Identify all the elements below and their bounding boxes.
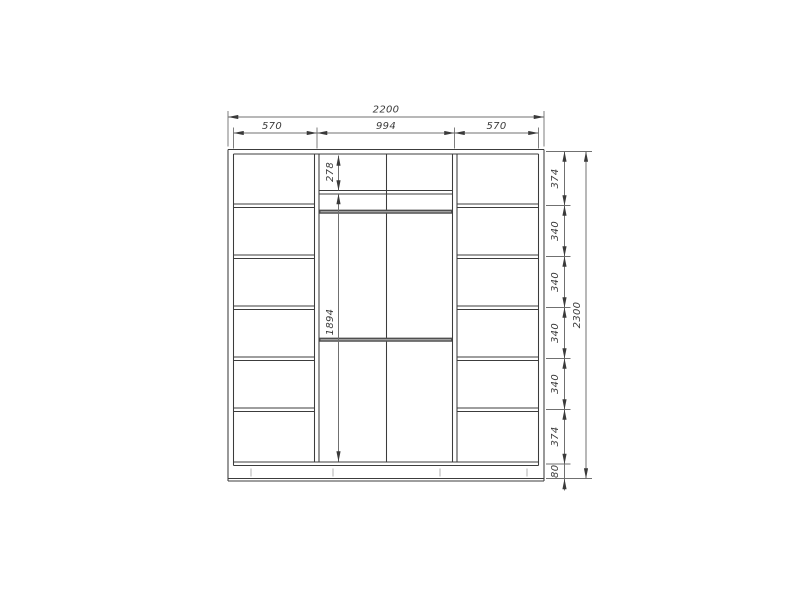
dim-chain-label-4: 340 (550, 323, 561, 343)
dim-chain-label-1: 374 (550, 169, 561, 189)
dim-overall-width-label: 2200 (373, 105, 400, 116)
dim-chain-label-7: 80 (550, 465, 561, 478)
dim-chain-label-2: 340 (550, 221, 561, 241)
plinth-joint-marks (251, 469, 527, 477)
dim-top-sections: 570 994 570 (234, 121, 539, 149)
dim-overall-height-label: 2300 (572, 302, 583, 329)
dim-chain-label-5: 340 (550, 374, 561, 394)
dim-upper-shelf-label: 278 (325, 162, 336, 182)
dim-left-section-label: 570 (262, 121, 282, 132)
dim-right-chain: 374 340 340 340 340 374 80 (546, 152, 592, 491)
left-partition (315, 154, 320, 462)
dim-center-section-label: 994 (376, 121, 396, 132)
wardrobe-dimension-drawing: 2200 570 994 570 278 1894 (0, 0, 800, 600)
dim-upper-shelf-height: 278 (325, 156, 338, 191)
technical-drawing-canvas: 2200 570 994 570 278 1894 (0, 0, 800, 600)
dim-hanging-height: 1894 (325, 194, 338, 462)
dim-overall-height: 2300 (572, 152, 586, 479)
right-partition (453, 154, 458, 462)
right-column-shelves (457, 204, 539, 412)
cabinet-body (228, 150, 544, 482)
dim-chain-label-6: 374 (550, 427, 561, 447)
dim-hanging-label: 1894 (325, 309, 336, 336)
left-column-shelves (234, 204, 315, 412)
center-top-shelf (319, 191, 453, 195)
dim-right-section-label: 570 (487, 121, 507, 132)
dim-chain-label-3: 340 (550, 272, 561, 292)
